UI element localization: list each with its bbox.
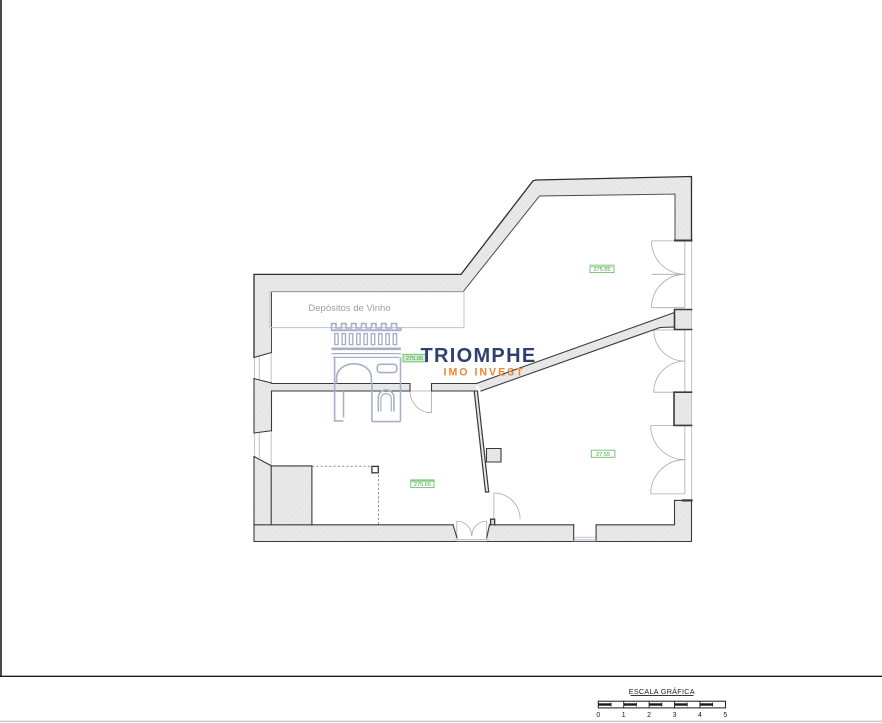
svg-text:27.55: 27.55 xyxy=(596,452,610,458)
svg-text:275.65: 275.65 xyxy=(593,267,610,273)
svg-text:Depósitos de Vinho: Depósitos de Vinho xyxy=(308,303,390,314)
svg-text:2: 2 xyxy=(647,712,651,719)
svg-text:0: 0 xyxy=(596,712,600,719)
svg-text:1: 1 xyxy=(622,712,626,719)
svg-text:IMO INVEST: IMO INVEST xyxy=(444,367,525,379)
svg-text:3: 3 xyxy=(673,712,677,719)
svg-text:275.65: 275.65 xyxy=(414,482,431,488)
svg-text:5: 5 xyxy=(723,712,727,719)
svg-text:TRIOMPHE: TRIOMPHE xyxy=(421,345,537,367)
svg-text:ESCALA GRÁFICA: ESCALA GRÁFICA xyxy=(629,687,695,696)
svg-text:4: 4 xyxy=(698,712,702,719)
